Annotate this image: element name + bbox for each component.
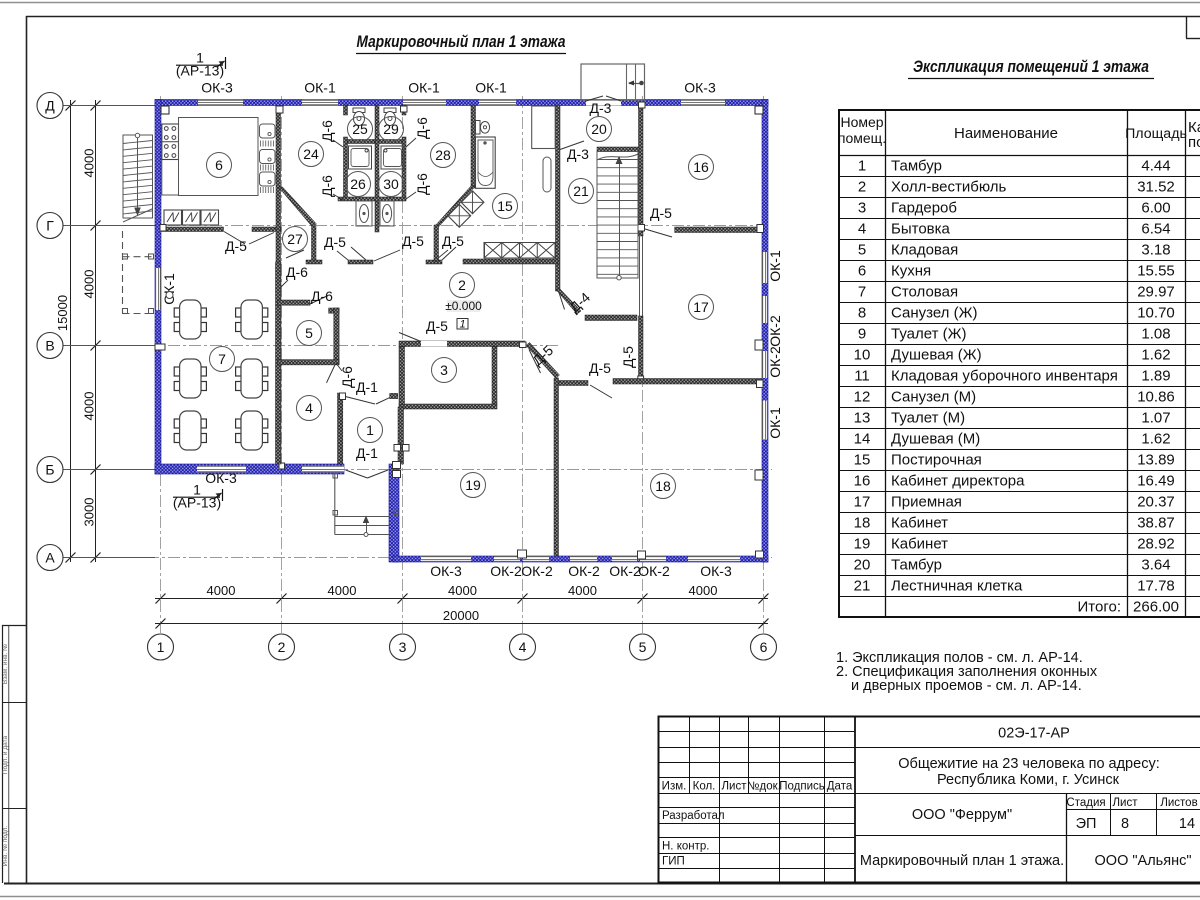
svg-text:1.62: 1.62 <box>1141 431 1170 448</box>
svg-text:16: 16 <box>854 473 871 490</box>
svg-text:15.55: 15.55 <box>1137 263 1175 280</box>
svg-text:Д-6: Д-6 <box>311 288 333 304</box>
svg-text:10.70: 10.70 <box>1137 305 1175 322</box>
svg-text:16.49: 16.49 <box>1137 473 1175 490</box>
svg-text:17.78: 17.78 <box>1137 578 1175 595</box>
svg-text:02Э-17-АР: 02Э-17-АР <box>998 726 1070 742</box>
svg-text:ОК-3: ОК-3 <box>205 470 237 486</box>
svg-text:6: 6 <box>858 263 866 280</box>
svg-text:1.62: 1.62 <box>1141 347 1170 364</box>
svg-text:Кладовая: Кладовая <box>891 242 958 259</box>
svg-text:30: 30 <box>383 176 399 192</box>
svg-text:Д: Д <box>45 98 55 114</box>
svg-text:ОК-3: ОК-3 <box>201 80 233 96</box>
svg-text:6: 6 <box>215 157 223 173</box>
svg-text:ОК-2: ОК-2 <box>521 563 553 579</box>
svg-text:ООО "Феррум": ООО "Феррум" <box>912 807 1012 823</box>
svg-text:Инв. № подл.: Инв. № подл. <box>2 826 9 867</box>
svg-text:1.08: 1.08 <box>1141 326 1170 343</box>
svg-text:8: 8 <box>1121 816 1129 832</box>
svg-text:Приемная: Приемная <box>891 494 962 511</box>
svg-text:19: 19 <box>465 477 481 493</box>
svg-text:ОК-2: ОК-2 <box>609 563 641 579</box>
svg-text:Кабинет директора: Кабинет директора <box>891 473 1025 490</box>
svg-text:10: 10 <box>854 347 871 364</box>
svg-text:2: 2 <box>278 639 286 655</box>
svg-text:17: 17 <box>693 299 709 315</box>
svg-text:20: 20 <box>591 121 607 137</box>
svg-text:Д-5: Д-5 <box>442 233 464 249</box>
svg-text:29.97: 29.97 <box>1137 284 1175 301</box>
svg-text:15: 15 <box>497 198 513 214</box>
svg-text:Изм.: Изм. <box>662 781 687 793</box>
svg-text:11: 11 <box>854 368 870 385</box>
svg-text:ОК-1: ОК-1 <box>767 250 783 282</box>
svg-text:ОК-2: ОК-2 <box>767 346 783 378</box>
svg-text:Номер: Номер <box>840 114 883 130</box>
svg-text:В: В <box>45 338 54 354</box>
svg-text:(АР-13): (АР-13) <box>173 495 221 511</box>
svg-text:13: 13 <box>854 410 871 427</box>
svg-text:Взам. инв. №: Взам. инв. № <box>2 644 9 684</box>
svg-text:Д-6: Д-6 <box>339 366 355 388</box>
svg-text:Лист: Лист <box>1113 797 1139 809</box>
svg-text:Н. контр.: Н. контр. <box>662 841 709 853</box>
svg-text:Холл-вестибюль: Холл-вестибюль <box>891 179 1007 196</box>
svg-text:Д-6: Д-6 <box>414 173 430 195</box>
svg-text:6.00: 6.00 <box>1141 200 1170 217</box>
svg-text:1.89: 1.89 <box>1141 368 1170 385</box>
svg-text:Д-3: Д-3 <box>567 146 589 162</box>
svg-text:№док.: №док. <box>747 781 781 793</box>
svg-text:4: 4 <box>858 221 866 238</box>
svg-text:Д-5: Д-5 <box>620 346 636 368</box>
svg-text:16: 16 <box>693 159 709 175</box>
svg-text:Туалет (Ж): Туалет (Ж) <box>891 326 966 343</box>
svg-text:Д-6: Д-6 <box>319 120 335 142</box>
svg-text:Кладовая уборочного инвентаря: Кладовая уборочного инвентаря <box>891 368 1118 385</box>
svg-text:4000: 4000 <box>82 392 97 421</box>
svg-text:Кухня: Кухня <box>891 263 931 280</box>
svg-text:4000: 4000 <box>207 583 236 598</box>
svg-text:Душевая (М): Душевая (М) <box>891 431 980 448</box>
svg-text:ЭП: ЭП <box>1076 816 1097 832</box>
svg-text:21: 21 <box>573 183 589 199</box>
svg-text:Разработал: Разработал <box>662 810 725 822</box>
svg-text:12: 12 <box>854 389 871 406</box>
svg-text:20: 20 <box>854 557 871 574</box>
svg-text:Д-5: Д-5 <box>225 238 247 254</box>
svg-text:Д-6: Д-6 <box>319 175 335 197</box>
svg-text:10.86: 10.86 <box>1137 389 1175 406</box>
svg-text:25: 25 <box>352 121 368 137</box>
svg-text:Д-3: Д-3 <box>590 100 612 116</box>
svg-text:Республика Коми, г. Усинск: Республика Коми, г. Усинск <box>937 772 1120 788</box>
svg-text:18: 18 <box>854 515 871 532</box>
svg-text:1: 1 <box>459 319 465 331</box>
svg-text:28: 28 <box>435 147 451 163</box>
svg-text:Лестничная клетка: Лестничная клетка <box>891 578 1023 595</box>
svg-text:2: 2 <box>858 179 866 196</box>
svg-text:Д-1: Д-1 <box>356 445 378 461</box>
svg-text:17: 17 <box>854 494 871 511</box>
svg-text:А: А <box>45 550 55 566</box>
svg-text:4000: 4000 <box>82 149 97 178</box>
svg-text:Подп. и дата: Подп. и дата <box>2 735 9 774</box>
svg-text:ОК-1: ОК-1 <box>161 273 177 305</box>
svg-text:и дверных проемов - см. л. АР-: и дверных проемов - см. л. АР-14. <box>851 678 1082 694</box>
svg-text:20.37: 20.37 <box>1137 494 1175 511</box>
svg-text:6.54: 6.54 <box>1141 221 1170 238</box>
svg-text:1.07: 1.07 <box>1141 410 1170 427</box>
svg-text:Наименование: Наименование <box>954 125 1058 142</box>
svg-text:Б: Б <box>45 462 54 478</box>
svg-text:5: 5 <box>639 639 647 655</box>
svg-text:ОК-3: ОК-3 <box>700 563 732 579</box>
svg-text:Бытовка: Бытовка <box>891 221 951 238</box>
svg-text:Кол.: Кол. <box>693 781 716 793</box>
svg-text:4000: 4000 <box>328 583 357 598</box>
svg-text:ОК-2: ОК-2 <box>638 563 670 579</box>
svg-text:6: 6 <box>760 639 768 655</box>
svg-text:Экспликация помещений 1 этажа: Экспликация помещений 1 этажа <box>913 57 1149 76</box>
svg-text:Маркировочный план 1 этажа.: Маркировочный план 1 этажа. <box>860 853 1064 869</box>
svg-text:Маркировочный план 1 этажа: Маркировочный план 1 этажа <box>357 32 566 51</box>
svg-text:4: 4 <box>305 400 313 416</box>
svg-text:ОК-3: ОК-3 <box>684 80 716 96</box>
svg-text:19: 19 <box>854 536 871 553</box>
svg-text:Постирочная: Постирочная <box>891 452 982 469</box>
svg-text:Гардероб: Гардероб <box>891 200 957 217</box>
svg-text:Общежитие на 23 человека по ад: Общежитие на 23 человека по адресу: <box>898 756 1159 772</box>
svg-text:Дата: Дата <box>827 781 853 793</box>
svg-text:3.18: 3.18 <box>1141 242 1170 259</box>
svg-text:ОК-1: ОК-1 <box>408 80 440 96</box>
svg-text:3.64: 3.64 <box>1141 557 1170 574</box>
svg-text:9: 9 <box>858 326 866 343</box>
svg-text:помещ.: помещ. <box>838 130 886 146</box>
svg-text:Д-6: Д-6 <box>414 117 430 139</box>
svg-text:15000: 15000 <box>55 295 70 331</box>
svg-text:ОК-2: ОК-2 <box>767 315 783 347</box>
svg-text:Площадь: Площадь <box>1125 126 1187 142</box>
svg-text:ОК-1: ОК-1 <box>767 407 783 439</box>
svg-text:ОК-2: ОК-2 <box>490 563 522 579</box>
svg-text:ГИП: ГИП <box>662 856 685 868</box>
svg-text:ООО "Альянс": ООО "Альянс" <box>1095 853 1192 869</box>
svg-text:8: 8 <box>858 305 866 322</box>
svg-text:1: 1 <box>157 639 165 655</box>
svg-text:Санузел (Ж): Санузел (Ж) <box>891 305 977 322</box>
svg-text:27: 27 <box>287 231 303 247</box>
svg-text:Стадия: Стадия <box>1066 797 1105 809</box>
svg-text:4.44: 4.44 <box>1141 158 1170 175</box>
svg-text:29: 29 <box>383 121 399 137</box>
svg-text:Лист: Лист <box>722 781 748 793</box>
svg-text:Д-5: Д-5 <box>426 318 448 334</box>
svg-text:Д-5: Д-5 <box>589 360 611 376</box>
svg-text:Итого:: Итого: <box>1078 599 1121 616</box>
svg-text:21: 21 <box>854 578 871 595</box>
svg-text:5: 5 <box>305 325 313 341</box>
svg-text:13.89: 13.89 <box>1137 452 1175 469</box>
svg-text:3: 3 <box>440 362 448 378</box>
svg-text:14: 14 <box>1179 816 1195 832</box>
svg-text:2: 2 <box>458 277 466 293</box>
svg-text:266.00: 266.00 <box>1133 599 1179 616</box>
svg-text:Д-5: Д-5 <box>650 205 672 221</box>
svg-text:Д-5: Д-5 <box>324 234 346 250</box>
svg-text:3000: 3000 <box>82 498 97 527</box>
svg-text:(АР-13): (АР-13) <box>176 63 224 79</box>
svg-text:Кабинет: Кабинет <box>891 515 948 532</box>
svg-text:4000: 4000 <box>82 270 97 299</box>
svg-text:ОК-3: ОК-3 <box>430 563 462 579</box>
svg-text:Г: Г <box>46 218 54 234</box>
svg-text:7: 7 <box>858 284 866 301</box>
svg-text:ОК-2: ОК-2 <box>568 563 600 579</box>
svg-text:Санузел (М): Санузел (М) <box>891 389 976 406</box>
svg-text:Листов: Листов <box>1160 797 1197 809</box>
svg-text:28.92: 28.92 <box>1137 536 1175 553</box>
svg-text:Столовая: Столовая <box>891 284 958 301</box>
svg-text:ОК-1: ОК-1 <box>304 80 336 96</box>
svg-text:4: 4 <box>519 639 527 655</box>
svg-text:Тамбур: Тамбур <box>891 557 942 574</box>
svg-text:3: 3 <box>399 639 407 655</box>
svg-text:3: 3 <box>858 200 866 217</box>
svg-text:ОК-1: ОК-1 <box>475 80 507 96</box>
svg-text:Подпись: Подпись <box>779 781 825 793</box>
svg-text:20000: 20000 <box>443 608 479 623</box>
svg-text:24: 24 <box>303 146 319 162</box>
svg-text:Туалет (М): Туалет (М) <box>891 410 965 427</box>
svg-text:±0.000: ±0.000 <box>445 299 482 313</box>
svg-text:4000: 4000 <box>689 583 718 598</box>
svg-text:4000: 4000 <box>568 583 597 598</box>
svg-text:Тамбур: Тамбур <box>891 158 942 175</box>
svg-text:5: 5 <box>858 242 866 259</box>
svg-text:14: 14 <box>854 431 871 448</box>
svg-text:Д-1: Д-1 <box>356 379 378 395</box>
svg-text:1: 1 <box>366 422 374 438</box>
svg-text:Душевая (Ж): Душевая (Ж) <box>891 347 982 364</box>
svg-text:Д-5: Д-5 <box>402 233 424 249</box>
svg-text:15: 15 <box>854 452 871 469</box>
svg-text:Кабинет: Кабинет <box>891 536 948 553</box>
svg-text:18: 18 <box>655 478 671 494</box>
svg-text:38.87: 38.87 <box>1137 515 1175 532</box>
svg-text:4000: 4000 <box>448 583 477 598</box>
svg-text:7: 7 <box>218 351 226 367</box>
svg-text:26: 26 <box>350 176 366 192</box>
svg-text:по: по <box>1188 134 1200 151</box>
svg-text:1: 1 <box>858 158 866 175</box>
svg-text:Д-6: Д-6 <box>286 264 308 280</box>
svg-text:31.52: 31.52 <box>1137 179 1175 196</box>
